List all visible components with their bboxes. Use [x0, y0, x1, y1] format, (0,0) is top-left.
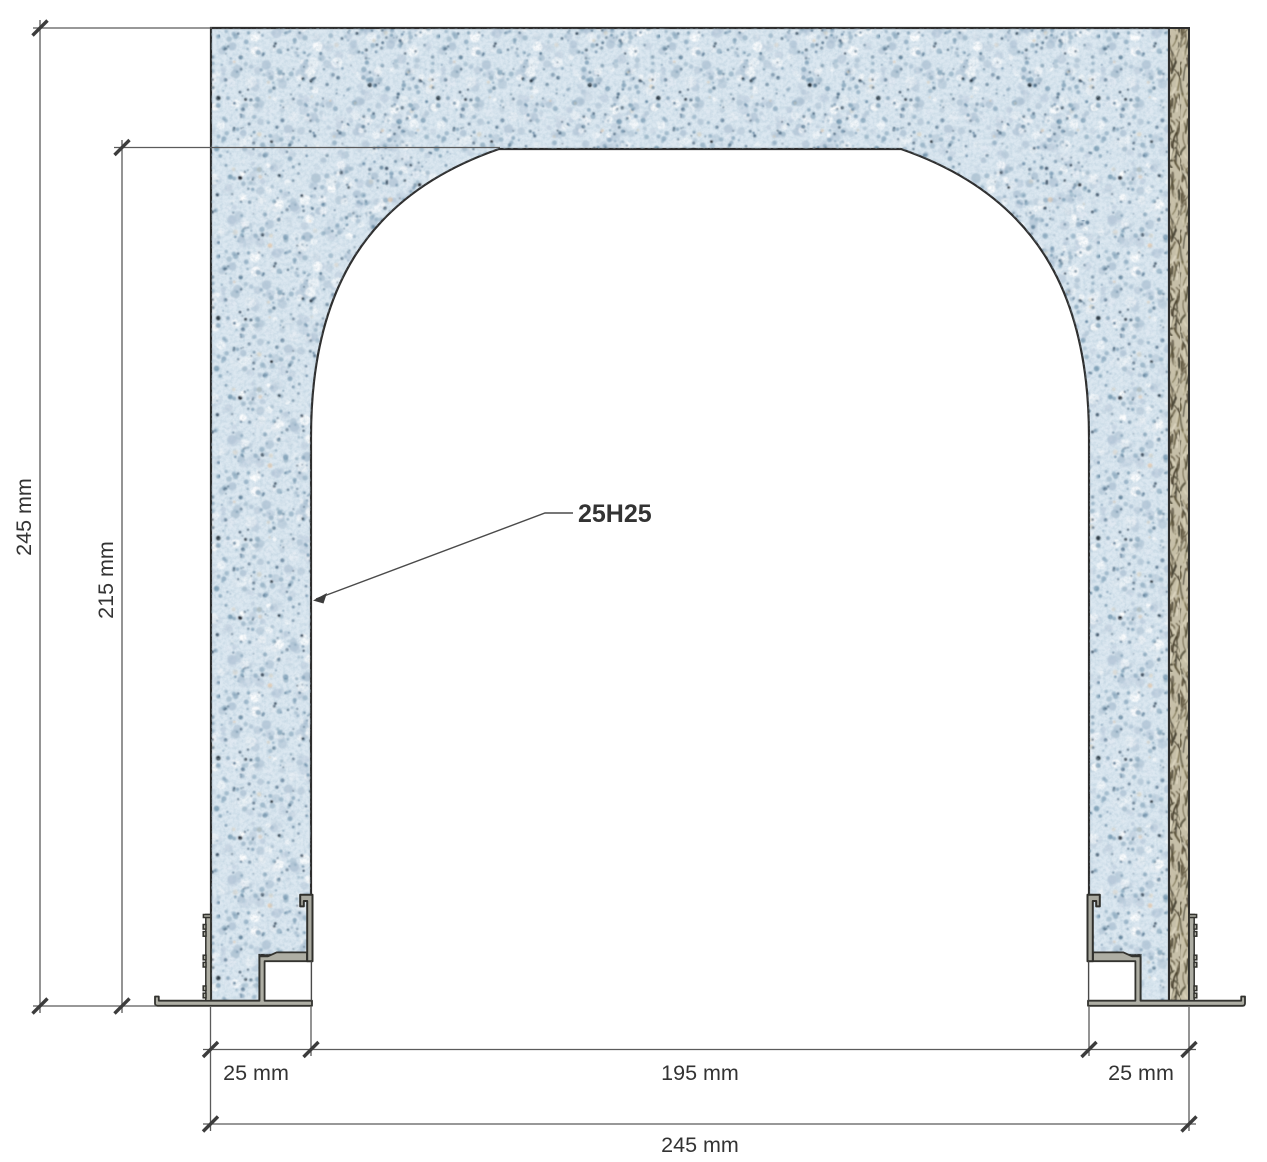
svg-text:25H25: 25H25 — [578, 500, 652, 528]
svg-text:195 mm: 195 mm — [661, 1061, 739, 1085]
svg-text:245 mm: 245 mm — [661, 1133, 739, 1157]
svg-text:215 mm: 215 mm — [94, 541, 118, 619]
svg-text:245 mm: 245 mm — [12, 478, 36, 556]
svg-text:25 mm: 25 mm — [1108, 1061, 1174, 1085]
svg-text:25 mm: 25 mm — [223, 1061, 289, 1085]
